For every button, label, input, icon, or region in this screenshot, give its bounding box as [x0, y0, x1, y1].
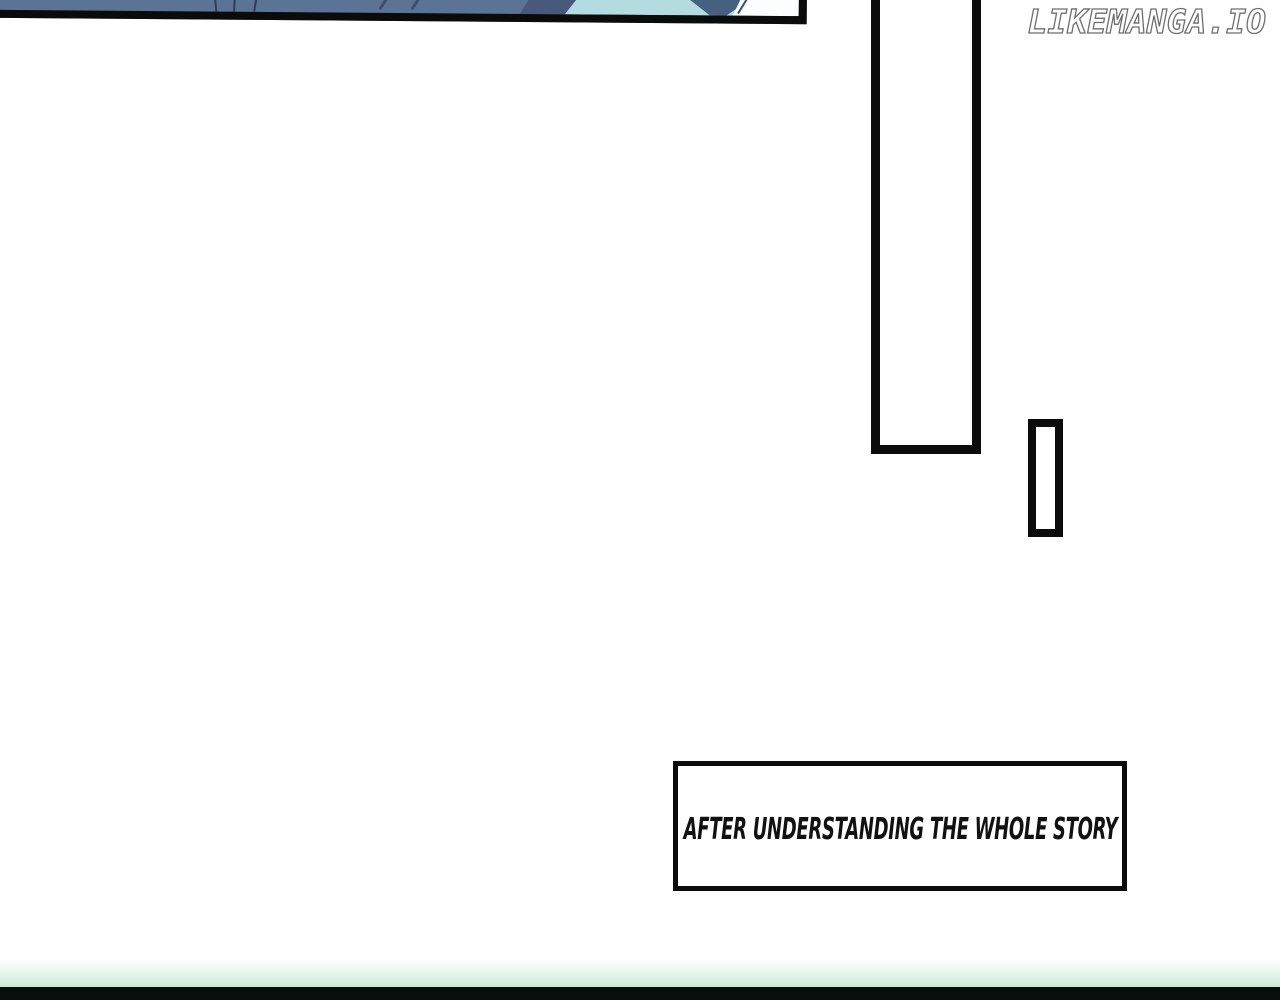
manga-panel-top-partial: [0, 0, 809, 24]
site-watermark: LIKEMANGA.IO: [1028, 3, 1266, 41]
art-thin-line: [212, 0, 217, 12]
caption-box: AFTER UNDERSTANDING THE WHOLE STORY: [673, 761, 1127, 891]
art-thin-line: [253, 0, 261, 12]
caption-text: AFTER UNDERSTANDING THE WHOLE STORY: [683, 812, 1117, 847]
manga-panel-tall-empty: [871, 0, 981, 454]
manga-reader-page: LIKEMANGA.IO AFTER UNDERSTANDING THE WHO…: [0, 0, 1280, 1000]
page-bottom-black-bar: [0, 987, 1280, 1000]
art-diagonal-line: [379, 0, 407, 10]
manga-panel-small-empty: [1028, 419, 1063, 537]
art-diagonal-line: [411, 0, 439, 10]
page-bottom-green-fade: [0, 959, 1280, 987]
art-thin-line: [233, 0, 237, 12]
